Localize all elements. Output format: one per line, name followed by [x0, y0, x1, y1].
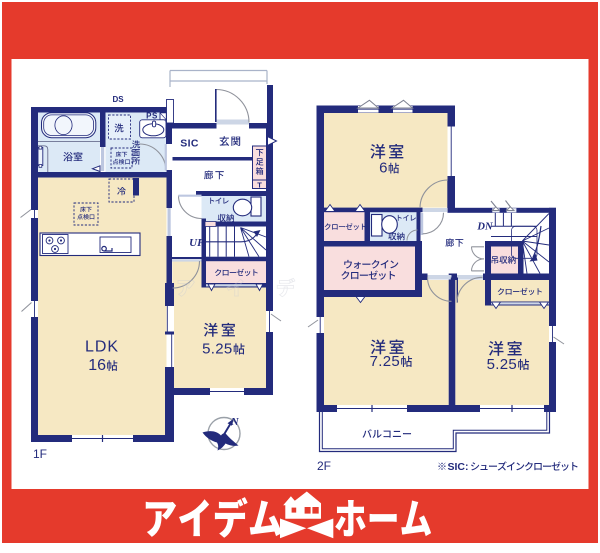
- svg-text:1F: 1F: [33, 447, 47, 461]
- svg-text:16: 16: [88, 357, 106, 374]
- svg-text:5.25: 5.25: [202, 341, 232, 358]
- svg-text:LDK: LDK: [85, 339, 119, 356]
- svg-text:5.25: 5.25: [487, 356, 517, 373]
- svg-text:6: 6: [379, 160, 387, 177]
- svg-text:SIC: SIC: [180, 138, 199, 150]
- svg-text:T: T: [257, 181, 262, 190]
- svg-text:SIC:: SIC:: [448, 461, 469, 473]
- svg-text:2F: 2F: [317, 459, 331, 473]
- svg-text:DN: DN: [476, 222, 493, 233]
- svg-text:UP: UP: [189, 237, 204, 249]
- svg-text:N: N: [230, 417, 239, 428]
- svg-text:DS: DS: [112, 95, 124, 104]
- svg-text:PS: PS: [146, 112, 158, 121]
- svg-text:7.25: 7.25: [370, 353, 400, 370]
